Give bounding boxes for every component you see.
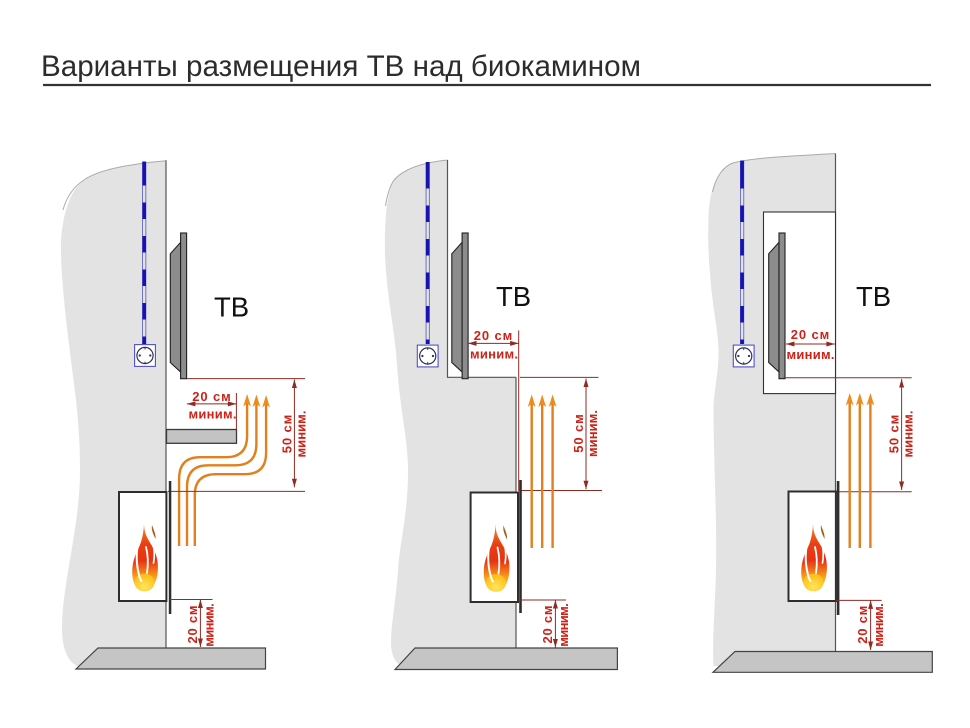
svg-text:миним.: миним. xyxy=(585,410,600,457)
svg-text:миним.: миним. xyxy=(201,603,216,647)
svg-text:миним.: миним. xyxy=(901,411,916,458)
svg-text:20 см: 20 см xyxy=(192,389,231,404)
svg-text:50 см: 50 см xyxy=(571,414,586,453)
svg-text:20 см: 20 см xyxy=(855,606,870,644)
svg-text:20 см: 20 см xyxy=(474,328,513,343)
svg-text:20 см: 20 см xyxy=(185,606,200,644)
svg-text:миним.: миним. xyxy=(189,407,237,422)
svg-text:Варианты размещения ТВ над био: Варианты размещения ТВ над биокамином xyxy=(41,50,641,83)
svg-text:ТВ: ТВ xyxy=(214,292,249,323)
svg-text:миним.: миним. xyxy=(556,603,571,647)
svg-text:20 см: 20 см xyxy=(791,327,830,342)
svg-text:миним.: миним. xyxy=(871,603,886,647)
svg-text:миним.: миним. xyxy=(294,411,309,458)
svg-text:миним.: миним. xyxy=(787,347,835,362)
svg-text:ТВ: ТВ xyxy=(496,281,531,312)
svg-text:20 см: 20 см xyxy=(540,606,555,644)
svg-text:50 см: 50 см xyxy=(887,415,902,454)
svg-text:ТВ: ТВ xyxy=(856,281,891,312)
svg-text:миним.: миним. xyxy=(470,347,518,362)
svg-text:50 см: 50 см xyxy=(280,415,295,454)
